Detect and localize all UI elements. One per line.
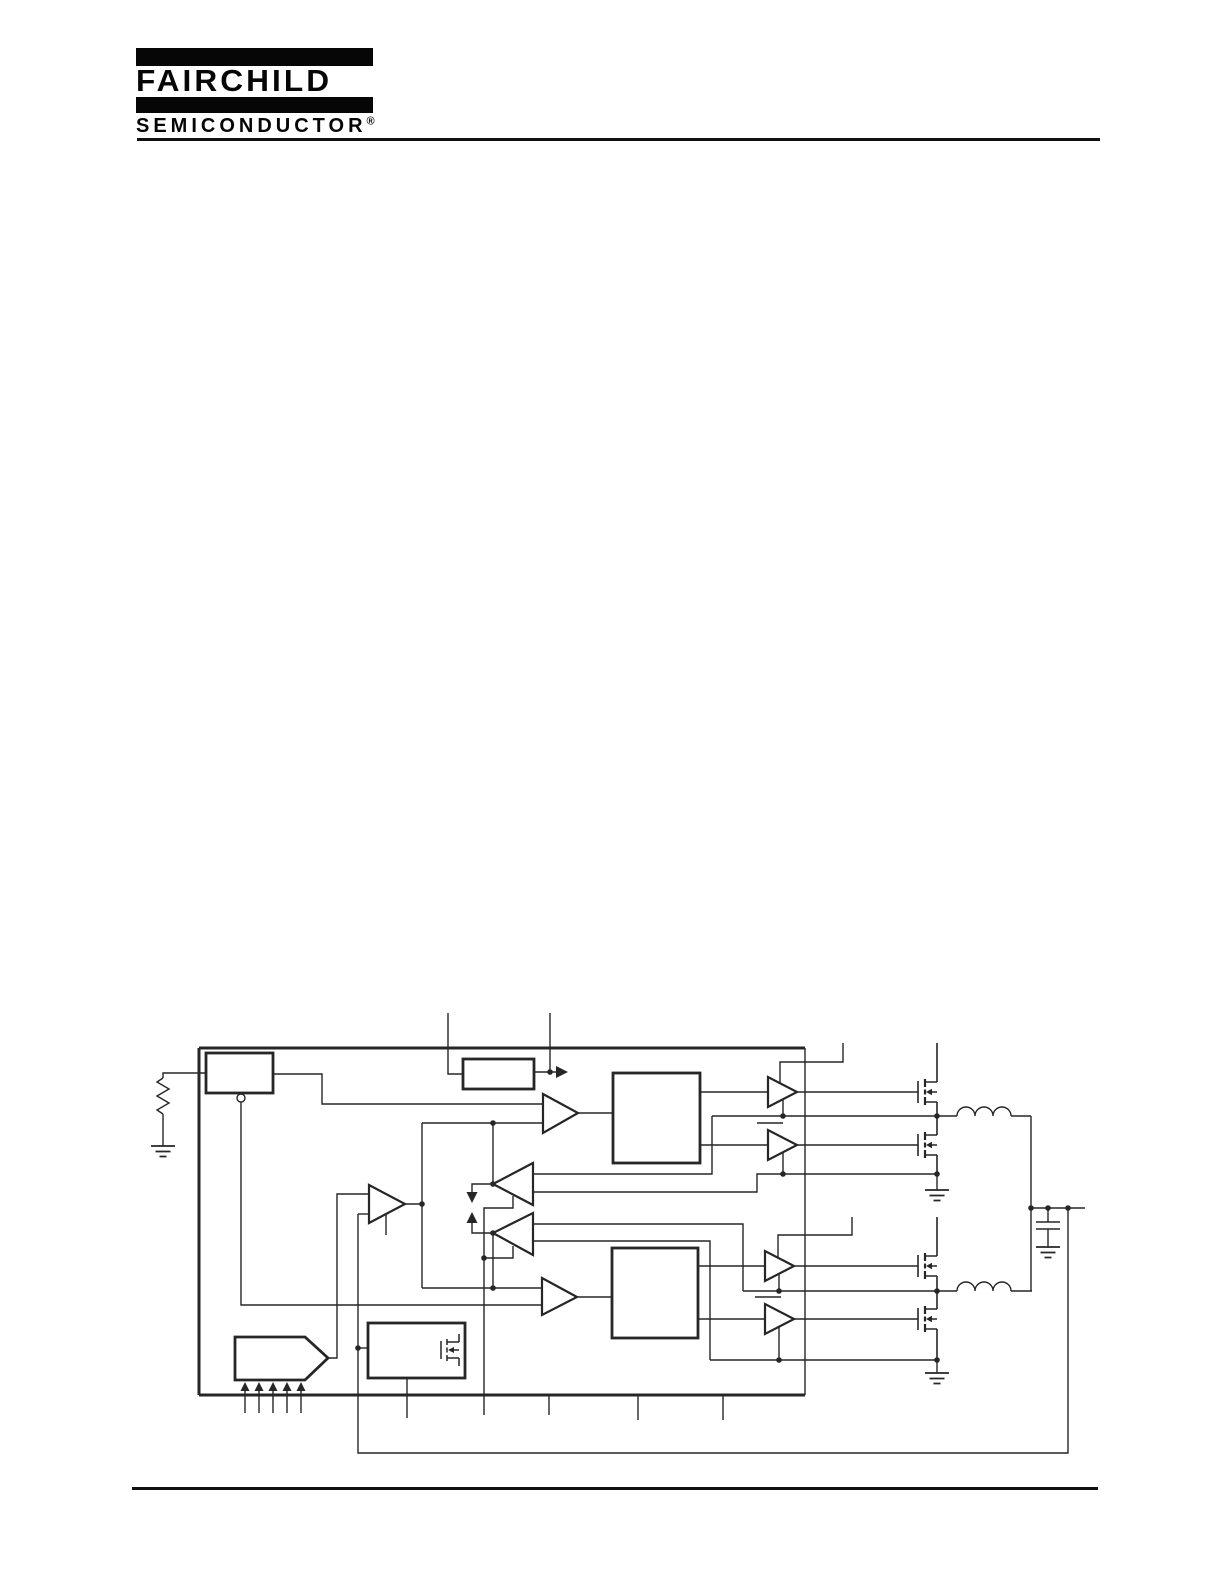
dac-to-error-amp: [328, 1194, 369, 1358]
source-arrow-wire: [472, 1223, 493, 1233]
output-capacitor: [1036, 1208, 1060, 1258]
high-side-mosfet-1: [918, 1043, 937, 1116]
power-mosfets: [918, 1043, 937, 1360]
inductor-1: [957, 1107, 1011, 1116]
logic2-to-drivers: [698, 1266, 765, 1319]
bias-jog-2: [484, 1246, 513, 1258]
high-side-mosfet-2: [918, 1217, 937, 1291]
pwm-comparator-1: [543, 1094, 578, 1133]
pgnd2-ground: [925, 1360, 949, 1384]
control-logic-block-1: [613, 1073, 700, 1163]
current-source-arrow: [467, 1212, 478, 1223]
inductor-2: [957, 1282, 1011, 1291]
oscillator-inverting-bubble: [237, 1094, 245, 1102]
oscillator-block: [206, 1053, 273, 1093]
reference-current-arrow: [556, 1066, 568, 1078]
top-pin-1: [448, 1013, 463, 1074]
gate-lines-1: [797, 1092, 918, 1145]
low-side-mosfet-2: [918, 1291, 937, 1360]
blocks: [206, 1053, 797, 1380]
error-amplifier: [369, 1185, 405, 1223]
vid-input-pins: [241, 1382, 306, 1413]
current-sink-arrow: [467, 1192, 478, 1203]
pgnd1-sense: [533, 1174, 937, 1192]
datasheet-page: FAIRCHILD SEMICONDUCTOR®: [0, 0, 1225, 1585]
low-side-mosfet-1: [918, 1116, 937, 1174]
reference-current-block: [463, 1059, 534, 1089]
vid-dac-pentagon: [235, 1337, 328, 1380]
logic1-to-drivers: [700, 1092, 768, 1145]
sink-arrow-wire: [472, 1184, 493, 1192]
driver2-supply: [778, 1217, 852, 1258]
pgnd1-ground: [925, 1174, 949, 1201]
block-diagram: [0, 0, 1225, 1585]
gate-lines-2: [794, 1266, 918, 1319]
pwm-comparator-2: [542, 1278, 577, 1315]
control-logic-block-2: [612, 1248, 698, 1338]
